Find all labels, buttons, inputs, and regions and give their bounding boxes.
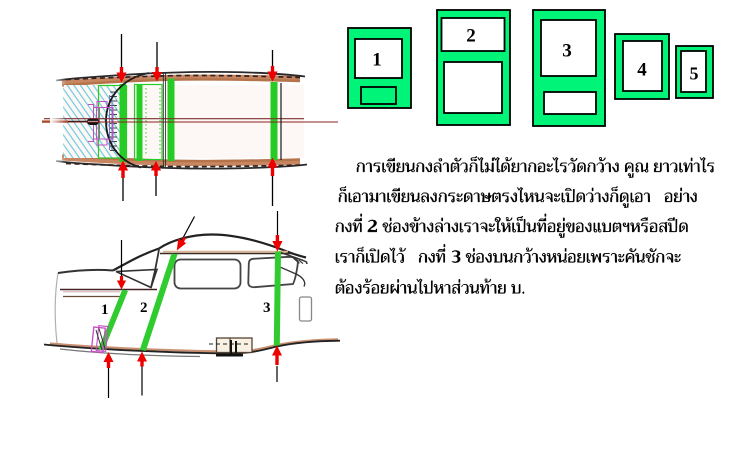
svg-text:1: 1	[372, 50, 382, 71]
svg-text:1: 1	[101, 302, 109, 318]
svg-text:3: 3	[562, 41, 572, 62]
svg-text:5: 5	[690, 64, 699, 84]
svg-text:2: 2	[466, 26, 476, 47]
svg-text:2: 2	[140, 300, 148, 316]
svg-text:4: 4	[637, 60, 647, 81]
svg-text:3: 3	[263, 300, 271, 316]
